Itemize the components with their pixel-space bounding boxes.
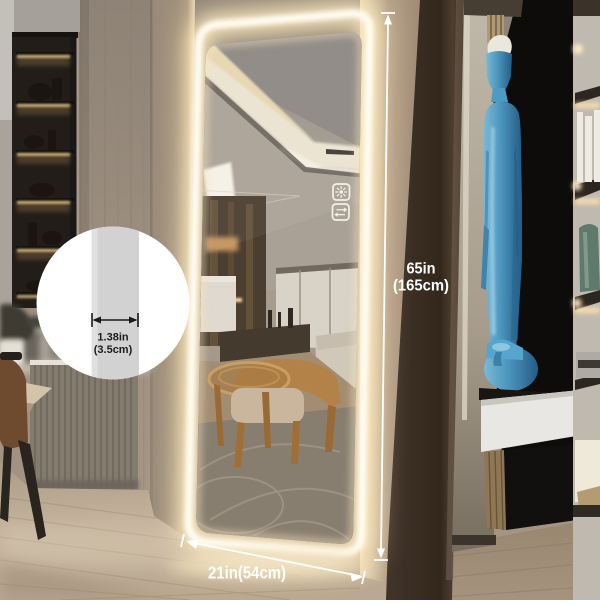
svg-text:65in: 65in [407,261,436,278]
svg-text:21in(54cm): 21in(54cm) [208,563,286,583]
svg-text:1.38in: 1.38in [97,332,128,344]
svg-text:(165cm): (165cm) [393,278,449,295]
svg-text:(3.5cm): (3.5cm) [94,344,133,356]
